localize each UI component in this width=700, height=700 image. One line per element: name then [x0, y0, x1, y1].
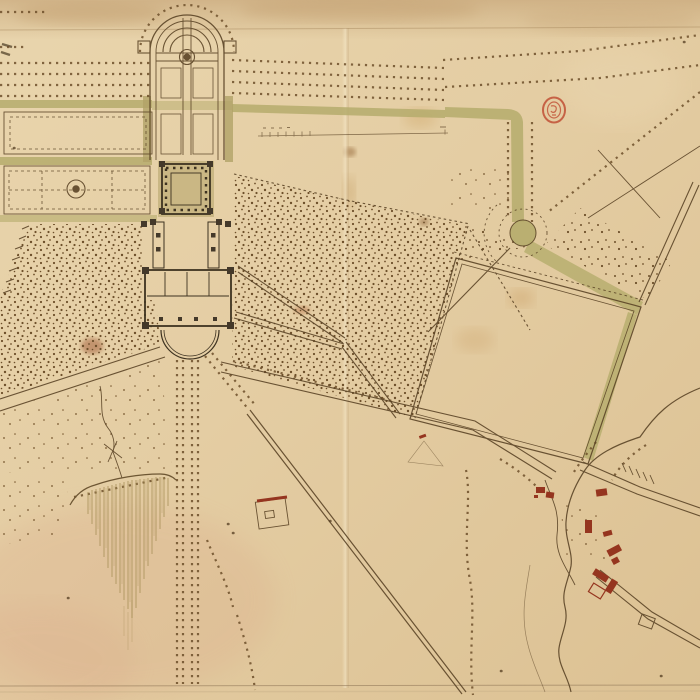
- scanned-map-page: [0, 0, 700, 700]
- west-wing-column-1: [156, 233, 161, 238]
- portico-column-2: [178, 317, 182, 321]
- portico-column-4: [213, 317, 217, 321]
- outer-pier-west: [141, 221, 147, 227]
- portico-column-1: [159, 317, 163, 321]
- hill-west-dots: [0, 472, 70, 545]
- red-building: [585, 520, 592, 533]
- estate-plan-drawing: [0, 0, 700, 700]
- green-verge-left: [0, 215, 157, 222]
- west-wing-column-2: [156, 247, 161, 252]
- red-building: [534, 495, 538, 498]
- green-ride-upper-left: [0, 100, 152, 108]
- house-pavilion-nw: [142, 267, 149, 274]
- cloister-corner-se: [207, 208, 213, 214]
- green-ride-lower-left: [0, 157, 152, 165]
- red-building: [546, 491, 555, 498]
- wing-pier-ne: [216, 219, 222, 225]
- outer-pier-east: [225, 221, 231, 227]
- wing-pier-nw: [150, 219, 156, 225]
- garden-basin-center: [184, 54, 190, 60]
- cloister-corner-nw: [159, 161, 165, 167]
- rond-point-west-dots: [448, 160, 512, 212]
- red-building: [536, 487, 545, 493]
- house-pavilion-ne: [227, 267, 234, 274]
- cloister-corner-ne: [207, 161, 213, 167]
- parterre-basin-center: [73, 186, 79, 192]
- house-pavilion-sw: [142, 322, 149, 329]
- east-wing-column-1: [211, 233, 216, 238]
- bottom-edge-highlight: [0, 691, 700, 692]
- portico-column-3: [194, 317, 198, 321]
- house-pavilion-se: [227, 322, 234, 329]
- garden-wall-strip-east: [225, 96, 233, 162]
- cloister-corner-sw: [159, 208, 165, 214]
- east-wing-column-2: [211, 247, 216, 252]
- green-ride-through-garden: [152, 101, 232, 110]
